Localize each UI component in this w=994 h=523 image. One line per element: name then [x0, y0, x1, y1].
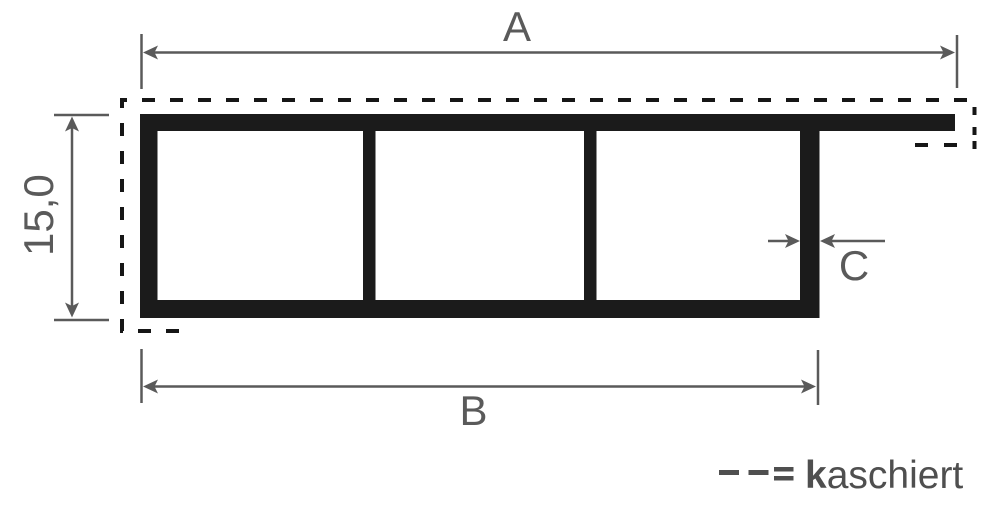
svg-text:A: A	[503, 3, 531, 50]
svg-text:C: C	[839, 242, 869, 289]
svg-text:kaschiert: kaschiert	[805, 454, 963, 497]
svg-text:B: B	[459, 387, 487, 434]
svg-text:15,0: 15,0	[15, 174, 62, 256]
